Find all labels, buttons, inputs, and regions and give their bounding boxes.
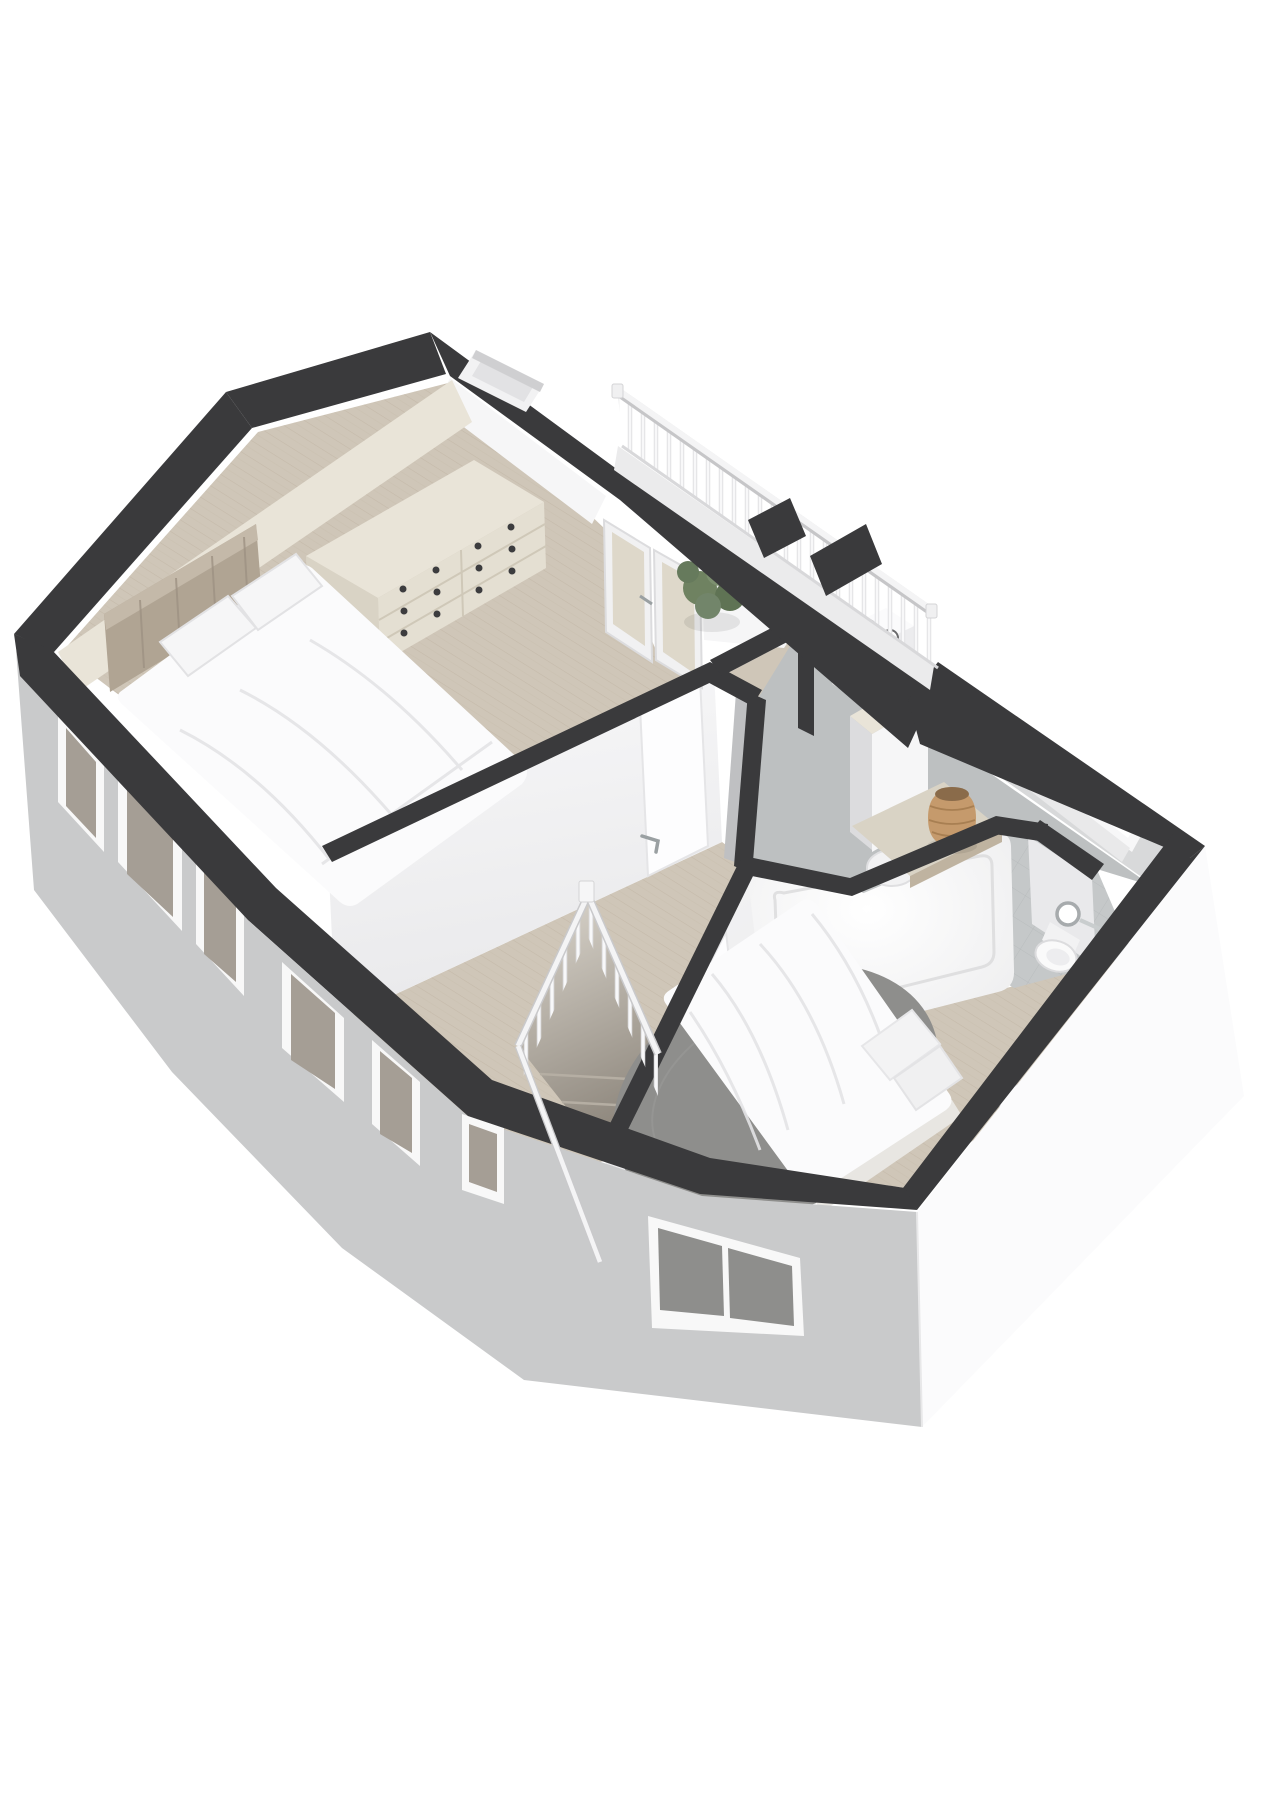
window	[462, 1114, 504, 1204]
stair-newel-post	[579, 881, 594, 902]
floorplan-svg	[0, 0, 1280, 1810]
balcony-railing-post	[926, 604, 937, 618]
balcony-railing-post	[612, 384, 623, 398]
